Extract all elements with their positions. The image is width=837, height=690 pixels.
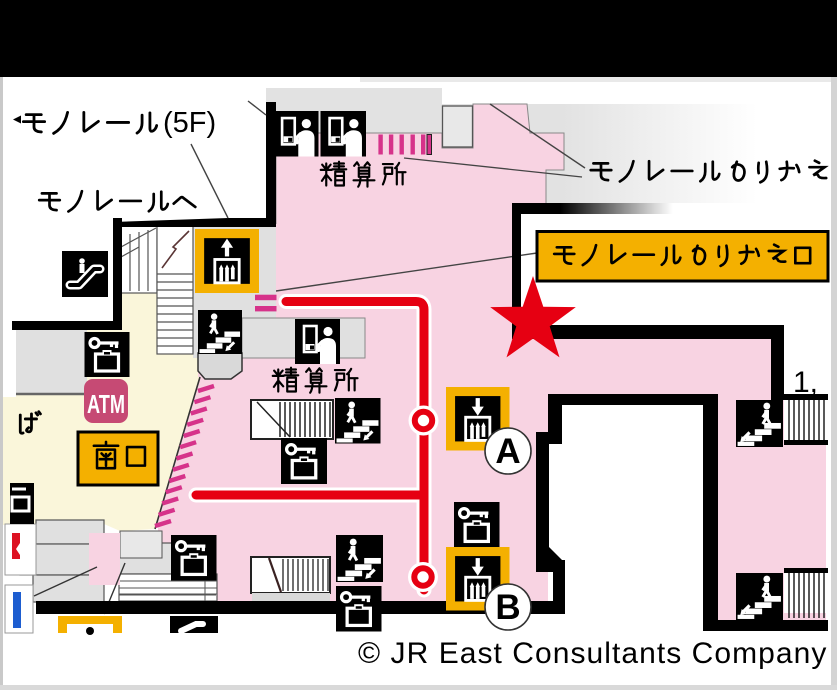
svg-text:A: A: [495, 432, 520, 471]
svg-text:© JR East Consultants Company: © JR East Consultants Company: [358, 637, 827, 670]
svg-text:ATM: ATM: [87, 389, 125, 419]
svg-text:B: B: [495, 588, 520, 627]
svg-text:1,: 1,: [793, 366, 818, 399]
svg-text:(5F): (5F): [163, 107, 216, 139]
